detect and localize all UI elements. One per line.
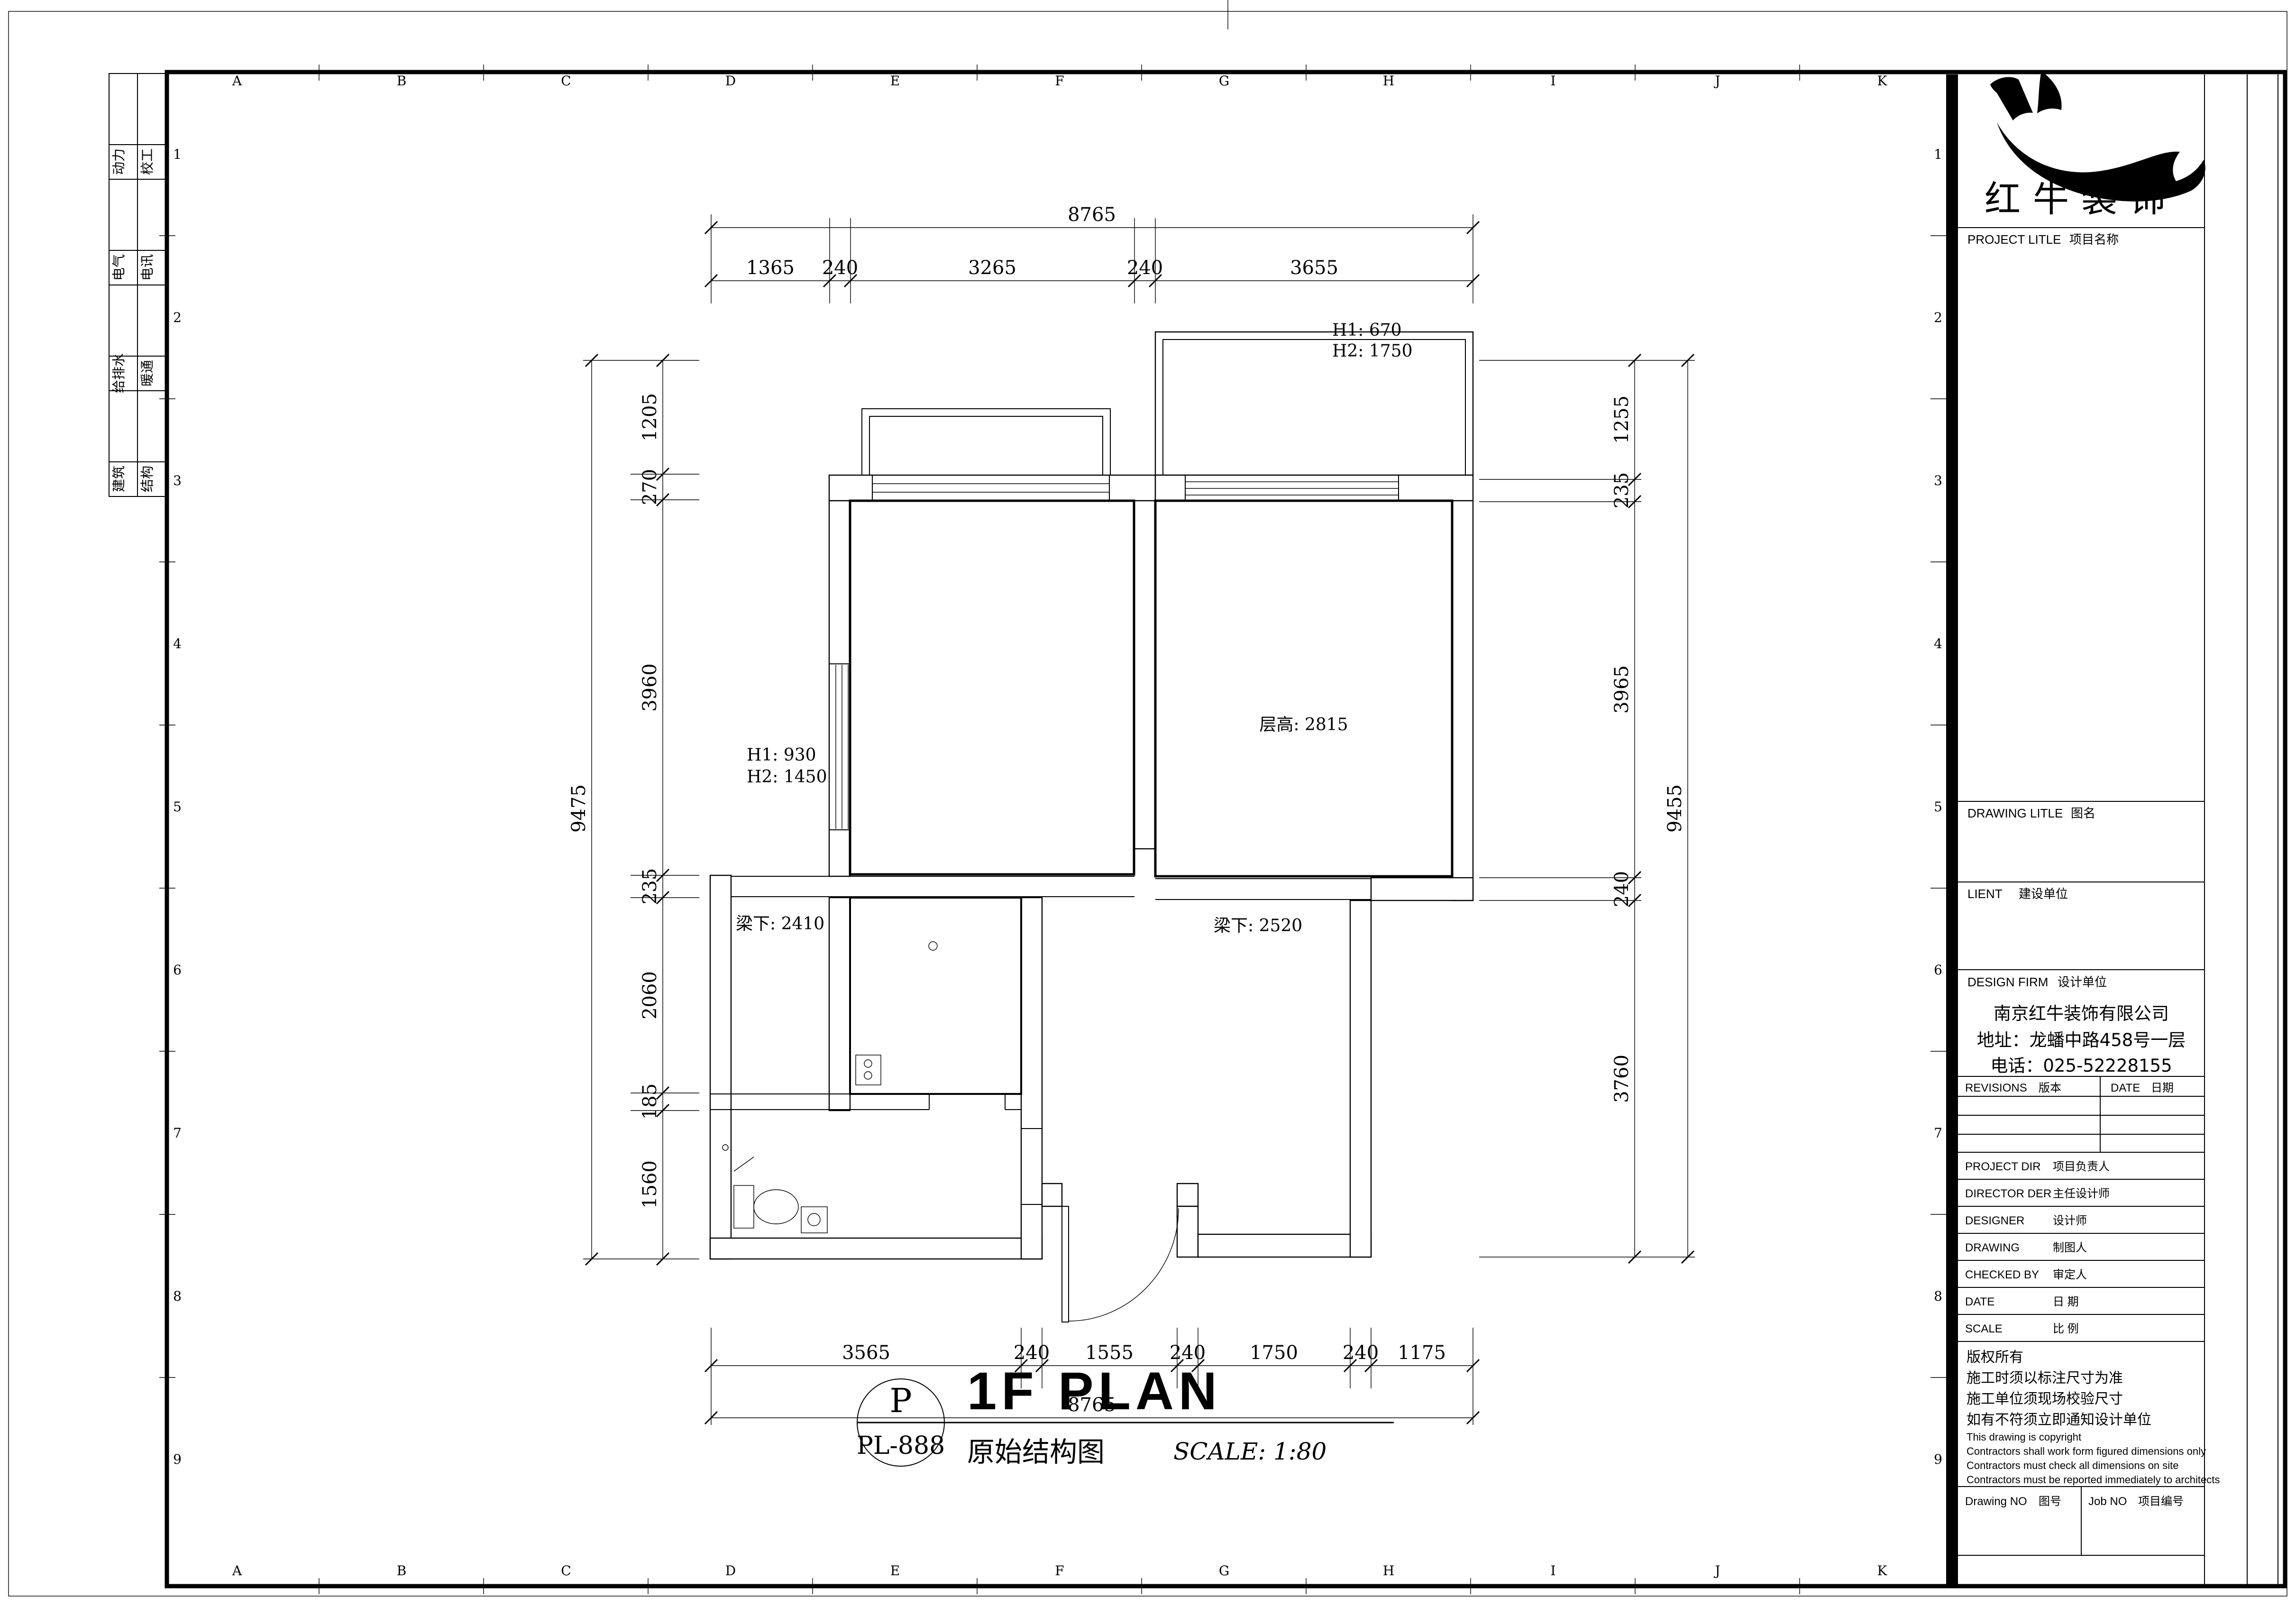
grid-letter: G <box>1219 1563 1229 1579</box>
tab-label: 校工 <box>139 148 155 175</box>
tab-label: 给排水 <box>111 353 127 393</box>
row-label-cn: 比 例 <box>2053 1322 2079 1335</box>
row-label-en: SCALE <box>1965 1322 2003 1335</box>
grid-letter: F <box>1055 73 1064 89</box>
project-title-label-en: PROJECT LITLE <box>1967 232 2061 247</box>
revisions-label-cn: 版本 <box>2039 1082 2061 1094</box>
grid-letter: D <box>725 1563 736 1579</box>
balcony <box>1155 332 1473 475</box>
client-label-cn: 建设单位 <box>2019 887 2068 901</box>
row-label-cn: 设计师 <box>2053 1214 2087 1227</box>
grid-letter: H <box>1383 73 1394 89</box>
grid-numbers-left: 1 2 3 4 5 6 7 8 9 <box>159 147 182 1467</box>
bay-window <box>862 409 1110 501</box>
dim-left-seg: 1560 <box>639 1160 661 1209</box>
dim-top: 8765 1365 240 3265 240 3655 <box>705 204 1479 303</box>
shower-line <box>734 1157 754 1171</box>
grid-letter: E <box>890 73 900 89</box>
dim-right-seg: 235 <box>1611 472 1633 508</box>
dim-bottom-seg: 240 <box>1343 1342 1379 1364</box>
firm-address: 地址：龙蟠中路458号一层 <box>1977 1030 2186 1050</box>
dim-left-overall: 9475 <box>568 784 590 833</box>
row-label-cn: 制图人 <box>2053 1241 2087 1254</box>
grid-letters-bottom: A B C D E F G H I J K <box>232 1563 1888 1594</box>
copyright-line: Contractors shall work form figured dime… <box>1967 1445 2206 1457</box>
grid-number: 1 <box>1934 147 1942 162</box>
dim-right-seg: 3965 <box>1611 665 1633 714</box>
grid-letter: K <box>1877 1563 1888 1579</box>
grid-letter: A <box>232 1563 242 1579</box>
grid-letter: I <box>1550 1563 1555 1579</box>
dim-left-seg: 2060 <box>639 971 661 1019</box>
dim-right-seg: 3760 <box>1611 1055 1633 1103</box>
row-label-cn: 主任设计师 <box>2053 1187 2110 1200</box>
window-height-left-2: H2: 1450 <box>747 767 827 787</box>
beam-label-right: 梁下: 2520 <box>1214 916 1302 936</box>
floor-plan: H1: 670 H2: 1750 H1: 930 H2: 1450 层高: 28… <box>710 321 1473 1322</box>
tab-labels: 动力 校工 电气 电讯 给排水 暖通 建筑 结构 <box>111 148 155 492</box>
grid-number: 4 <box>1934 636 1942 652</box>
grid-number: 5 <box>173 799 182 815</box>
plan-title-cn: 原始结构图 <box>967 1436 1105 1468</box>
grid-letter: K <box>1877 73 1888 89</box>
toilet-bowl <box>754 1190 798 1224</box>
row-label-cn: 审定人 <box>2053 1268 2087 1281</box>
job-no-label-cn: 项目编号 <box>2138 1495 2184 1508</box>
logo-horn-right <box>2037 71 2062 113</box>
dim-left-seg: 185 <box>639 1084 661 1120</box>
grid-letters-top: A B C D E F G H I J K <box>232 64 1888 89</box>
dim-left-seg: 235 <box>639 868 661 904</box>
copyright-line: 版权所有 <box>1967 1349 2023 1366</box>
plan-title-en: 1F PLAN <box>967 1361 1222 1421</box>
tab-label: 结构 <box>139 466 155 492</box>
copyright-line: 如有不符须立即通知设计单位 <box>1967 1412 2151 1428</box>
row-label-en: DRAWING <box>1965 1241 2020 1254</box>
grid-letter: C <box>561 1563 571 1579</box>
dim-right: 1255 235 3965 240 3760 9455 <box>1479 354 1695 1263</box>
grid-letter: I <box>1550 73 1555 89</box>
dim-bottom-seg: 240 <box>1170 1342 1206 1364</box>
copyright-line: 施工时须以标注尺寸为准 <box>1967 1370 2123 1387</box>
dim-bottom-seg: 240 <box>1014 1342 1050 1364</box>
dim-left-seg: 1205 <box>639 393 661 441</box>
design-firm-label-cn: 设计单位 <box>2058 975 2107 990</box>
window-height-left-1: H1: 930 <box>747 745 816 765</box>
tab-cells <box>109 73 166 496</box>
grid-number: 9 <box>1934 1451 1942 1467</box>
drawing-sheet: A B C D E F G H I J K A B C D E F <box>0 0 2296 1607</box>
grid-number: 6 <box>1934 962 1942 978</box>
discipline-tabs: 动力 校工 电气 电讯 给排水 暖通 建筑 结构 <box>109 73 166 496</box>
row-label-cn: 项目负责人 <box>2053 1160 2110 1173</box>
row-label-en: DIRECTOR DER <box>1965 1187 2051 1200</box>
project-title-label-cn: 项目名称 <box>2069 233 2119 247</box>
grid-number: 3 <box>1934 473 1942 488</box>
grid-number: 3 <box>173 473 182 488</box>
copyright-line: 施工单位须现场校验尺寸 <box>1967 1391 2123 1407</box>
ceiling-height-label: 层高: 2815 <box>1259 715 1348 735</box>
bubble-code: P <box>889 1381 912 1420</box>
grid-letter: B <box>397 1563 407 1579</box>
grid-number: 8 <box>173 1288 182 1304</box>
tab-label: 电讯 <box>139 254 155 281</box>
dim-bottom-seg: 1175 <box>1398 1342 1446 1364</box>
titleblock-left-bar <box>1946 74 1958 1584</box>
dim-left-seg: 270 <box>639 469 661 505</box>
entry-door-swing <box>1069 1208 1179 1321</box>
toilet-tank <box>734 1185 754 1228</box>
dim-top-seg: 3655 <box>1290 257 1338 279</box>
dim-bottom-seg: 1555 <box>1085 1342 1134 1364</box>
date-col-label-en: DATE <box>2111 1082 2140 1094</box>
window-height-top-1: H1: 670 <box>1332 321 1402 340</box>
dim-right-seg: 1255 <box>1611 395 1633 444</box>
kitchen-outline <box>850 898 1021 1094</box>
plan-title: P PL-888 1F PLAN 原始结构图 SCALE: 1:80 <box>857 1361 1394 1468</box>
grid-letter: E <box>890 1563 900 1579</box>
grid-number: 2 <box>173 310 182 325</box>
entry-door-leaf <box>1062 1206 1069 1322</box>
job-no-label-en: Job NO <box>2088 1495 2127 1508</box>
grid-letter: A <box>232 73 242 89</box>
row-label-en: DESIGNER <box>1965 1214 2024 1227</box>
grid-letter: B <box>397 73 407 89</box>
row-label-en: CHECKED BY <box>1965 1268 2039 1281</box>
beam-lines <box>710 876 1452 900</box>
logo-horn-left <box>1990 77 2033 120</box>
drawing-title-label-en: DRAWING LITLE <box>1967 806 2063 820</box>
beam-label-left: 梁下: 2410 <box>736 914 824 934</box>
copyright-line: Contractors must check all dimensions on… <box>1967 1460 2179 1471</box>
dim-bottom-seg: 1750 <box>1250 1342 1298 1364</box>
grid-number: 1 <box>173 147 182 162</box>
room-left-outline <box>850 501 1134 874</box>
entry-and-lower-right <box>1042 900 1371 1322</box>
date-col-label-cn: 日期 <box>2151 1082 2174 1094</box>
grid-letter: C <box>561 73 571 89</box>
dim-top-seg: 240 <box>822 257 858 279</box>
grid-letter: G <box>1219 73 1229 89</box>
row-label-en: PROJECT DIR <box>1965 1160 2041 1173</box>
plan-scale: SCALE: 1:80 <box>1173 1438 1326 1465</box>
grid-number: 2 <box>1934 310 1942 325</box>
dim-left-seg: 3960 <box>639 663 661 712</box>
tab-label: 暖通 <box>139 360 155 386</box>
grid-number: 4 <box>173 636 182 652</box>
upper-walls <box>829 501 1473 900</box>
drawing-title-label-cn: 图名 <box>2071 807 2095 821</box>
grid-number: 6 <box>173 962 182 978</box>
firm-name: 南京红牛装饰有限公司 <box>1994 1003 2169 1024</box>
drawing-no-label-en: Drawing NO <box>1965 1495 2027 1508</box>
row-label-en: DATE <box>1965 1295 1994 1308</box>
copyright-line: This drawing is copyright <box>1967 1431 2081 1443</box>
grid-number: 5 <box>1934 799 1942 815</box>
window-height-top-2: H2: 1750 <box>1332 341 1413 361</box>
dim-right-seg: 240 <box>1611 871 1633 907</box>
tab-label: 建筑 <box>111 466 127 492</box>
grid-letter: J <box>1713 73 1720 89</box>
grid-letter: D <box>725 73 736 89</box>
grid-number: 7 <box>1934 1125 1942 1141</box>
grid-number: 7 <box>173 1125 182 1141</box>
dim-left: 1205 270 3960 235 2060 185 1560 9475 <box>568 354 699 1265</box>
tab-label: 动力 <box>111 148 127 175</box>
dim-top-seg: 240 <box>1127 257 1163 279</box>
washbasin <box>801 1207 827 1233</box>
firm-phone: 电话：025-52228155 <box>1990 1056 2172 1076</box>
dim-bottom-seg: 3565 <box>842 1342 890 1364</box>
bubble-number: PL-888 <box>857 1432 945 1460</box>
revisions-label-en: REVISIONS <box>1965 1082 2027 1094</box>
grid-number: 8 <box>1934 1288 1942 1304</box>
company-name: 红牛装饰 <box>1985 178 2178 220</box>
grid-letter: H <box>1383 1563 1394 1579</box>
dim-top-overall: 8765 <box>1068 204 1116 226</box>
copyright-line: Contractors must be reported immediately… <box>1967 1474 2220 1486</box>
right-step-wall <box>1371 878 1473 900</box>
grid-numbers-right: 1 2 3 4 5 6 7 8 9 <box>1930 147 1947 1467</box>
title-block: 红牛装饰 PROJECT LITLE 项目名称 DRAWING LITLE 图名… <box>1958 71 2220 1555</box>
room-right-outline <box>1155 501 1452 876</box>
design-firm-label-en: DESIGN FIRM <box>1967 975 2048 989</box>
dim-top-seg: 1365 <box>746 257 795 279</box>
client-label-en: LIENT <box>1967 887 2003 901</box>
drawing-no-label-cn: 图号 <box>2039 1495 2061 1508</box>
tab-label: 电气 <box>111 254 127 281</box>
grid-letter: J <box>1713 1563 1720 1579</box>
ceiling-symbol <box>929 942 937 950</box>
row-label-cn: 日 期 <box>2053 1295 2079 1308</box>
grid-letter: F <box>1055 1563 1064 1579</box>
dim-top-seg: 3265 <box>968 257 1016 279</box>
dim-right-overall: 9455 <box>1664 784 1686 833</box>
grid-number: 9 <box>173 1451 182 1467</box>
